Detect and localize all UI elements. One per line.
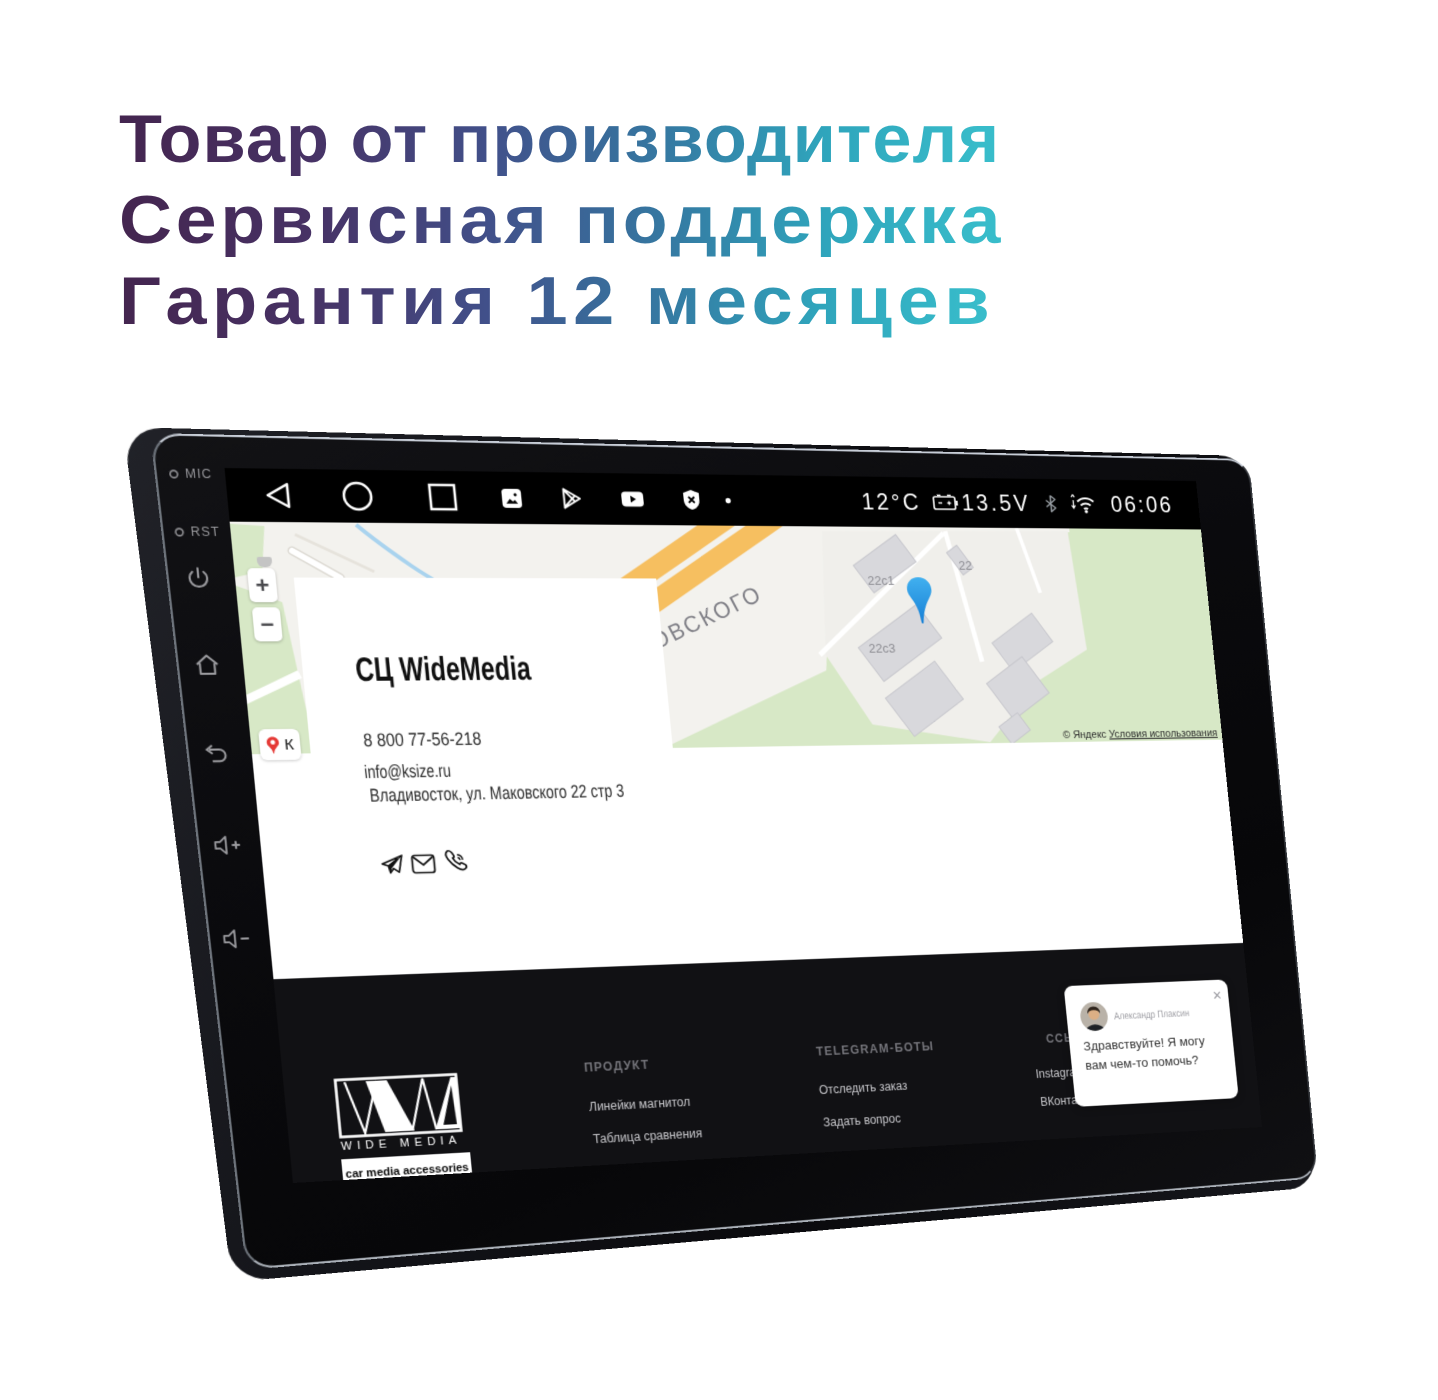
svg-text:22: 22 [958, 558, 973, 572]
svg-text:22с1: 22с1 [867, 573, 895, 588]
svg-text:22с3: 22с3 [868, 641, 896, 656]
svg-text:© Яндекс Условия использования: © Яндекс Условия использования [1062, 727, 1218, 741]
